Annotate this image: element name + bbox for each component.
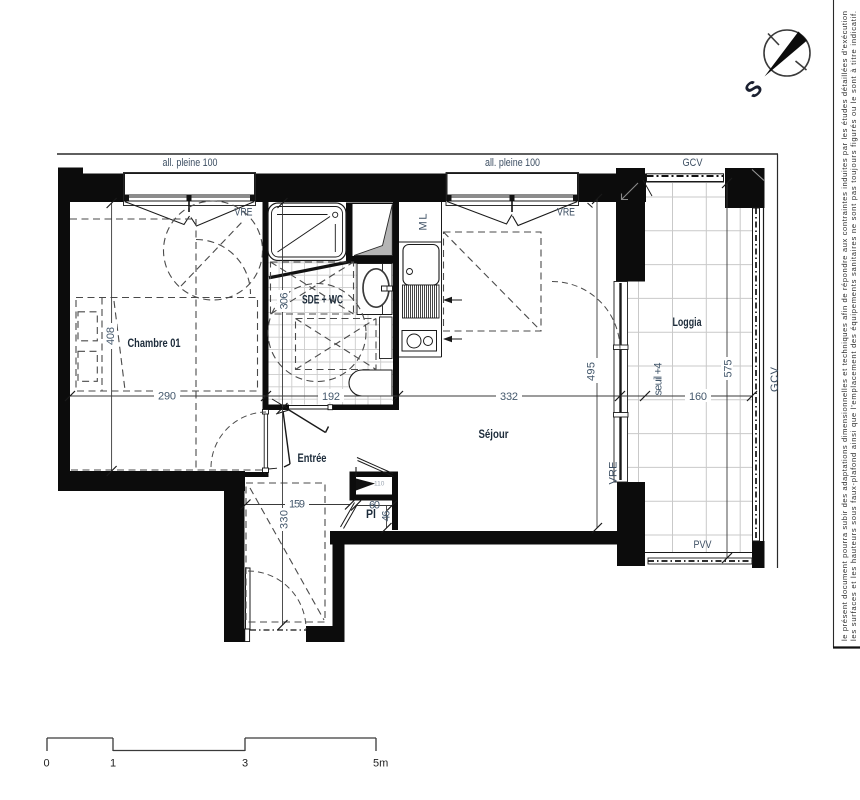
svg-text:46: 46 [381,511,393,522]
svg-text:Entrée: Entrée [298,451,327,465]
svg-text:GCV: GCV [769,366,781,392]
svg-text:all. pleine 100: all. pleine 100 [163,157,218,169]
svg-text:SDE + WC: SDE + WC [302,293,343,307]
svg-text:5m: 5m [373,758,388,770]
svg-text:159: 159 [289,499,305,511]
svg-text:332: 332 [500,391,518,403]
svg-text:VRE: VRE [608,462,620,485]
svg-text:0: 0 [44,758,50,770]
svg-text:Séjour: Séjour [479,427,509,441]
svg-text:les surfaces et les hauteurs s: les surfaces et les hauteurs sous faux-p… [849,11,858,641]
svg-text:VRE: VRE [235,207,253,219]
svg-text:1: 1 [110,758,116,770]
svg-text:192: 192 [322,391,340,403]
svg-text:Pl: Pl [366,507,376,521]
svg-text:495: 495 [586,362,598,381]
svg-text:3: 3 [242,758,248,770]
svg-text:408: 408 [105,327,117,345]
svg-text:le présent document pourra sub: le présent document pourra subir des ada… [840,11,849,641]
svg-text:seuil +4: seuil +4 [653,363,665,396]
svg-text:ML: ML [418,214,430,231]
svg-text:160: 160 [689,391,707,403]
svg-text:PVV: PVV [694,539,713,551]
svg-text:Chambre 01: Chambre 01 [128,336,181,350]
svg-text:GCV: GCV [683,157,704,169]
svg-text:306: 306 [279,293,291,310]
svg-text:all. pleine 100: all. pleine 100 [485,157,540,169]
svg-text:290: 290 [158,391,176,403]
svg-text:S: S [739,75,767,103]
svg-text:Loggia: Loggia [673,315,702,329]
svg-text:VRE: VRE [557,207,575,219]
svg-text:110: 110 [374,481,385,488]
svg-text:575: 575 [723,360,735,378]
svg-text:330: 330 [279,510,291,529]
